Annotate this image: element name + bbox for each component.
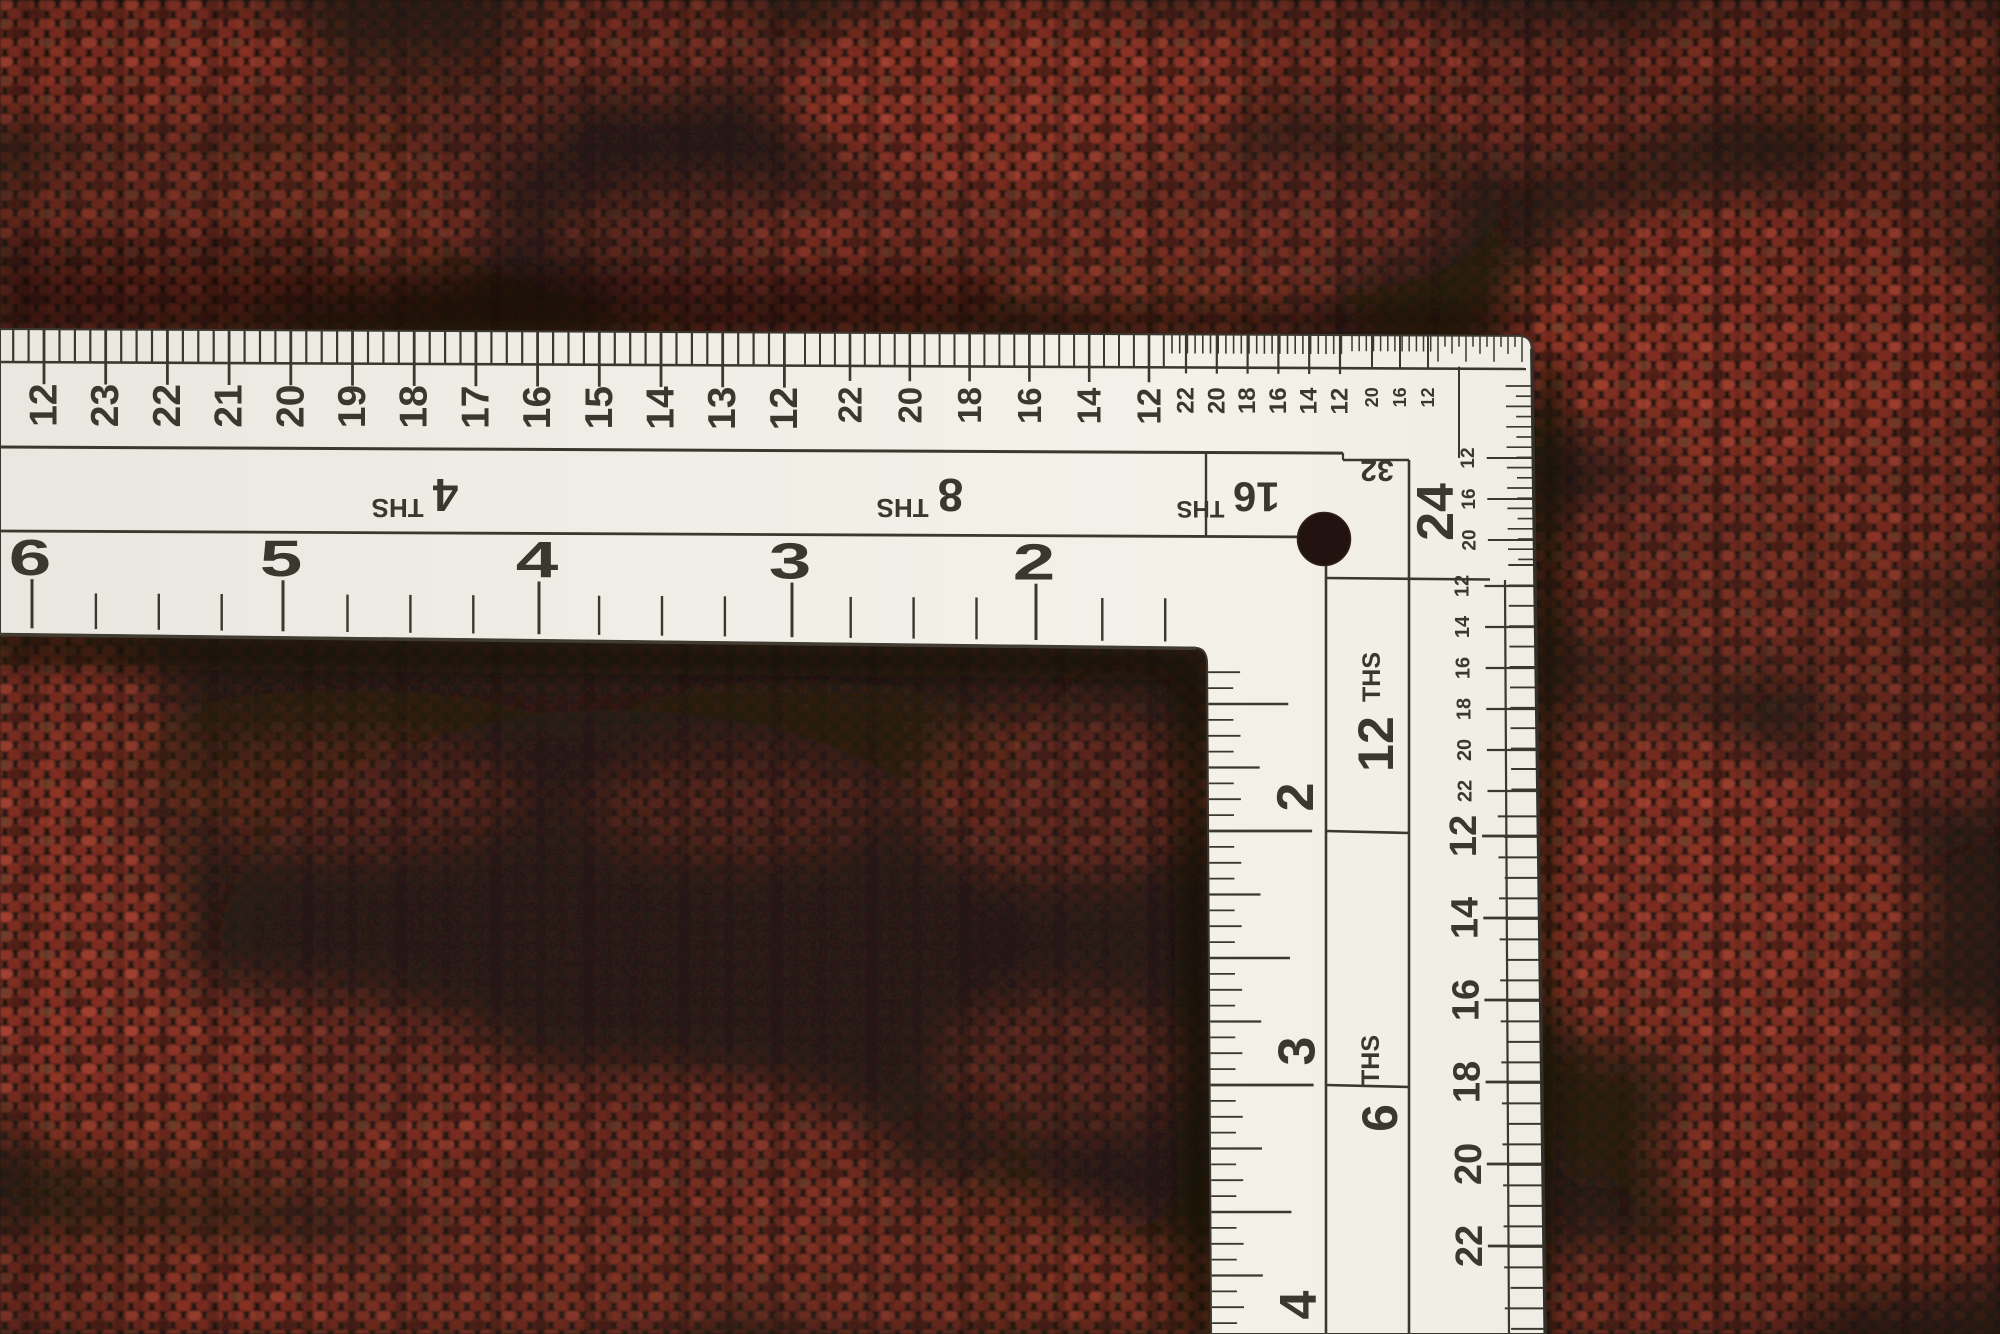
svg-text:12: 12 — [1443, 815, 1485, 857]
svg-text:17: 17 — [454, 386, 497, 429]
svg-text:18: 18 — [1234, 387, 1261, 414]
svg-text:16: 16 — [516, 386, 559, 429]
svg-text:3: 3 — [1268, 1037, 1326, 1066]
svg-text:4: 4 — [516, 531, 559, 588]
svg-text:14: 14 — [1444, 897, 1486, 939]
svg-text:22: 22 — [1449, 1225, 1491, 1267]
svg-text:22: 22 — [146, 384, 189, 427]
svg-text:14: 14 — [640, 386, 683, 430]
svg-text:12: 12 — [23, 384, 66, 427]
svg-text:20: 20 — [1448, 1143, 1490, 1185]
svg-text:16: 16 — [1459, 488, 1480, 509]
svg-text:20: 20 — [891, 387, 928, 424]
svg-text:20: 20 — [1459, 529, 1480, 550]
svg-text:6: 6 — [1352, 1104, 1408, 1132]
svg-text:18: 18 — [1447, 1061, 1489, 1103]
svg-text:16: 16 — [1011, 387, 1048, 424]
svg-text:12: 12 — [1418, 387, 1438, 407]
svg-text:16: 16 — [1390, 387, 1410, 407]
svg-text:20: 20 — [1362, 387, 1382, 407]
svg-text:20: 20 — [1203, 387, 1230, 414]
svg-text:5: 5 — [260, 530, 303, 587]
svg-text:2: 2 — [1013, 533, 1056, 590]
svg-text:18: 18 — [951, 387, 988, 424]
svg-text:3: 3 — [769, 532, 812, 589]
svg-text:12: 12 — [1458, 447, 1479, 468]
svg-text:24: 24 — [1407, 483, 1465, 541]
svg-text:13: 13 — [701, 387, 744, 430]
svg-text:6: 6 — [9, 528, 52, 585]
svg-text:12: 12 — [763, 387, 806, 430]
svg-text:14: 14 — [1071, 387, 1108, 424]
svg-text:22: 22 — [1455, 780, 1477, 802]
svg-text:THS: THS — [1358, 652, 1386, 702]
svg-text:2: 2 — [1267, 783, 1325, 812]
svg-text:21: 21 — [208, 384, 251, 427]
svg-text:12: 12 — [1452, 575, 1474, 597]
svg-text:16: 16 — [1453, 657, 1475, 679]
svg-text:15: 15 — [578, 386, 621, 429]
svg-text:18: 18 — [393, 385, 436, 428]
svg-text:32: 32 — [1360, 454, 1393, 487]
svg-text:20: 20 — [1454, 739, 1476, 761]
svg-text:19: 19 — [331, 385, 374, 428]
svg-text:23: 23 — [84, 384, 127, 427]
svg-text:12: 12 — [1348, 716, 1404, 772]
svg-text:14: 14 — [1452, 615, 1474, 638]
svg-text:16: 16 — [1265, 387, 1292, 414]
svg-text:16: 16 — [1445, 979, 1487, 1021]
svg-text:18: 18 — [1453, 698, 1475, 720]
svg-text:12: 12 — [1131, 388, 1168, 425]
svg-text:22: 22 — [832, 387, 869, 424]
svg-text:22: 22 — [1173, 387, 1200, 414]
svg-text:20: 20 — [269, 385, 312, 428]
svg-text:THS: THS — [1357, 1035, 1385, 1085]
svg-text:12: 12 — [1327, 388, 1354, 415]
svg-text:4: 4 — [1270, 1290, 1328, 1319]
svg-text:14: 14 — [1296, 387, 1323, 414]
